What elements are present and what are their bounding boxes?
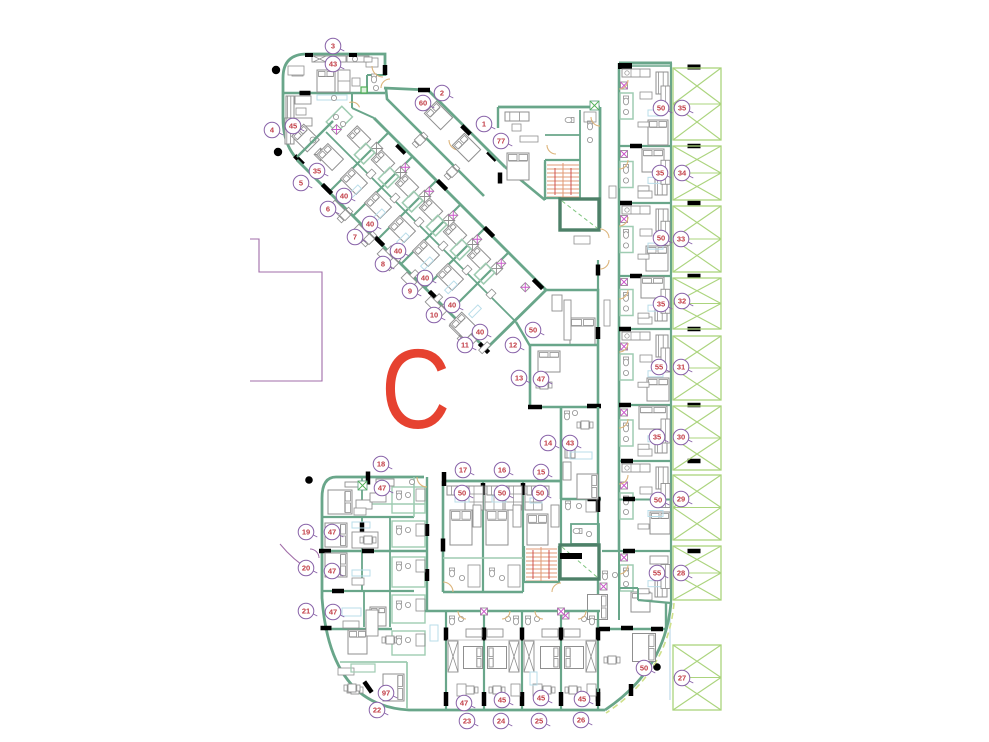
svg-text:40: 40: [448, 301, 456, 310]
svg-text:34: 34: [678, 169, 687, 178]
svg-text:23: 23: [463, 717, 471, 726]
svg-text:45: 45: [578, 695, 586, 704]
svg-text:20: 20: [302, 564, 310, 573]
svg-text:24: 24: [497, 717, 506, 726]
svg-text:17: 17: [459, 466, 467, 475]
svg-text:50: 50: [640, 664, 648, 673]
svg-text:47: 47: [328, 567, 336, 576]
svg-text:40: 40: [476, 328, 484, 337]
svg-text:14: 14: [544, 439, 553, 448]
svg-text:28: 28: [677, 569, 685, 578]
svg-text:18: 18: [377, 460, 385, 469]
svg-text:35: 35: [656, 169, 664, 178]
svg-text:43: 43: [566, 439, 574, 448]
svg-text:22: 22: [373, 706, 381, 715]
svg-text:40: 40: [340, 192, 348, 201]
svg-text:43: 43: [329, 60, 337, 69]
svg-text:13: 13: [515, 374, 523, 383]
svg-text:26: 26: [577, 716, 585, 725]
svg-text:3: 3: [331, 42, 335, 51]
svg-text:29: 29: [677, 495, 685, 504]
svg-text:31: 31: [677, 363, 685, 372]
svg-text:50: 50: [498, 489, 506, 498]
svg-text:55: 55: [653, 569, 661, 578]
svg-text:40: 40: [421, 274, 429, 283]
svg-text:47: 47: [329, 608, 337, 617]
svg-text:10: 10: [430, 311, 438, 320]
svg-text:55: 55: [655, 363, 663, 372]
svg-text:5: 5: [299, 179, 303, 188]
svg-text:25: 25: [535, 717, 543, 726]
svg-text:15: 15: [537, 468, 545, 477]
svg-text:97: 97: [382, 689, 390, 698]
svg-text:30: 30: [677, 433, 685, 442]
svg-text:27: 27: [678, 674, 686, 683]
svg-text:50: 50: [458, 489, 466, 498]
svg-text:45: 45: [498, 696, 506, 705]
svg-text:12: 12: [509, 341, 517, 350]
svg-text:35: 35: [653, 433, 661, 442]
svg-text:60: 60: [419, 99, 427, 108]
svg-text:47: 47: [328, 528, 336, 537]
svg-text:2: 2: [440, 89, 444, 98]
svg-text:33: 33: [677, 235, 685, 244]
svg-text:9: 9: [408, 287, 412, 296]
svg-text:50: 50: [657, 234, 665, 243]
svg-text:50: 50: [654, 496, 662, 505]
svg-text:32: 32: [678, 297, 686, 306]
svg-text:45: 45: [537, 694, 545, 703]
svg-text:11: 11: [461, 341, 469, 350]
svg-text:40: 40: [394, 247, 402, 256]
svg-text:19: 19: [302, 528, 310, 537]
svg-text:50: 50: [657, 104, 665, 113]
svg-text:C: C: [381, 327, 450, 453]
svg-text:1: 1: [482, 120, 486, 129]
svg-text:7: 7: [353, 233, 357, 242]
svg-text:77: 77: [497, 137, 505, 146]
svg-text:47: 47: [537, 375, 545, 384]
svg-text:35: 35: [678, 104, 686, 113]
svg-text:40: 40: [366, 220, 374, 229]
svg-text:35: 35: [657, 300, 665, 309]
svg-text:50: 50: [529, 326, 537, 335]
svg-text:6: 6: [326, 205, 330, 214]
svg-text:50: 50: [536, 489, 544, 498]
svg-text:47: 47: [378, 484, 386, 493]
svg-text:8: 8: [381, 260, 385, 269]
svg-text:45: 45: [289, 122, 297, 131]
svg-text:47: 47: [460, 699, 468, 708]
svg-text:16: 16: [498, 466, 506, 475]
svg-text:21: 21: [302, 607, 310, 616]
svg-text:35: 35: [313, 167, 321, 176]
